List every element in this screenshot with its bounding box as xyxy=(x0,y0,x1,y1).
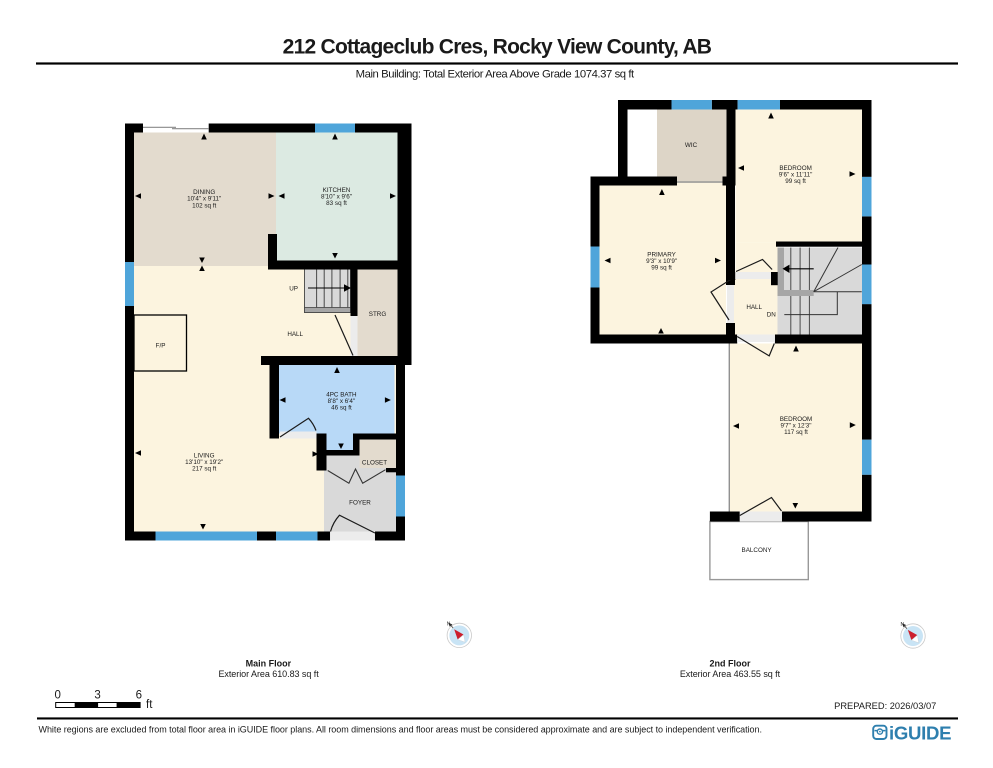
svg-text:46 sq ft: 46 sq ft xyxy=(331,405,352,412)
svg-text:99 sq ft: 99 sq ft xyxy=(785,178,806,185)
svg-text:Main Floor: Main Floor xyxy=(246,659,292,669)
svg-text:Main Building: Total Exterior: Main Building: Total Exterior Area Above… xyxy=(356,69,635,81)
svg-text:102 sq ft: 102 sq ft xyxy=(192,202,216,209)
svg-text:217 sq ft: 217 sq ft xyxy=(192,466,216,473)
svg-text:iGUIDE: iGUIDE xyxy=(889,722,951,743)
svg-text:CLOSET: CLOSET xyxy=(362,460,387,467)
svg-text:N: N xyxy=(447,621,451,627)
svg-text:DN: DN xyxy=(767,311,777,318)
svg-text:83 sq ft: 83 sq ft xyxy=(326,200,347,207)
svg-text:2nd Floor: 2nd Floor xyxy=(710,659,751,669)
svg-text:212 Cottageclub Cres, Rocky Vi: 212 Cottageclub Cres, Rocky View County,… xyxy=(283,36,712,59)
svg-text:HALL: HALL xyxy=(287,331,303,338)
svg-text:F/P: F/P xyxy=(156,343,166,350)
svg-text:0: 0 xyxy=(54,689,60,701)
svg-text:PREPARED: 2026/03/07: PREPARED: 2026/03/07 xyxy=(834,701,936,711)
svg-text:Exterior Area 610.83 sq ft: Exterior Area 610.83 sq ft xyxy=(218,669,319,679)
svg-text:White regions are excluded fro: White regions are excluded from total fl… xyxy=(39,725,763,735)
svg-text:Exterior Area 463.55 sq ft: Exterior Area 463.55 sq ft xyxy=(680,669,781,679)
svg-text:HALL: HALL xyxy=(746,304,762,311)
svg-text:3: 3 xyxy=(94,689,100,701)
svg-text:99 sq ft: 99 sq ft xyxy=(651,265,672,272)
svg-text:BALCONY: BALCONY xyxy=(742,547,773,554)
svg-text:N: N xyxy=(901,622,905,628)
svg-text:UP: UP xyxy=(289,286,298,293)
svg-text:117 sq ft: 117 sq ft xyxy=(784,429,808,436)
svg-text:WIC: WIC xyxy=(685,142,698,149)
svg-text:6: 6 xyxy=(136,689,142,701)
svg-text:ft: ft xyxy=(146,699,153,711)
svg-text:STRG: STRG xyxy=(369,311,387,318)
svg-text:FOYER: FOYER xyxy=(349,500,371,507)
